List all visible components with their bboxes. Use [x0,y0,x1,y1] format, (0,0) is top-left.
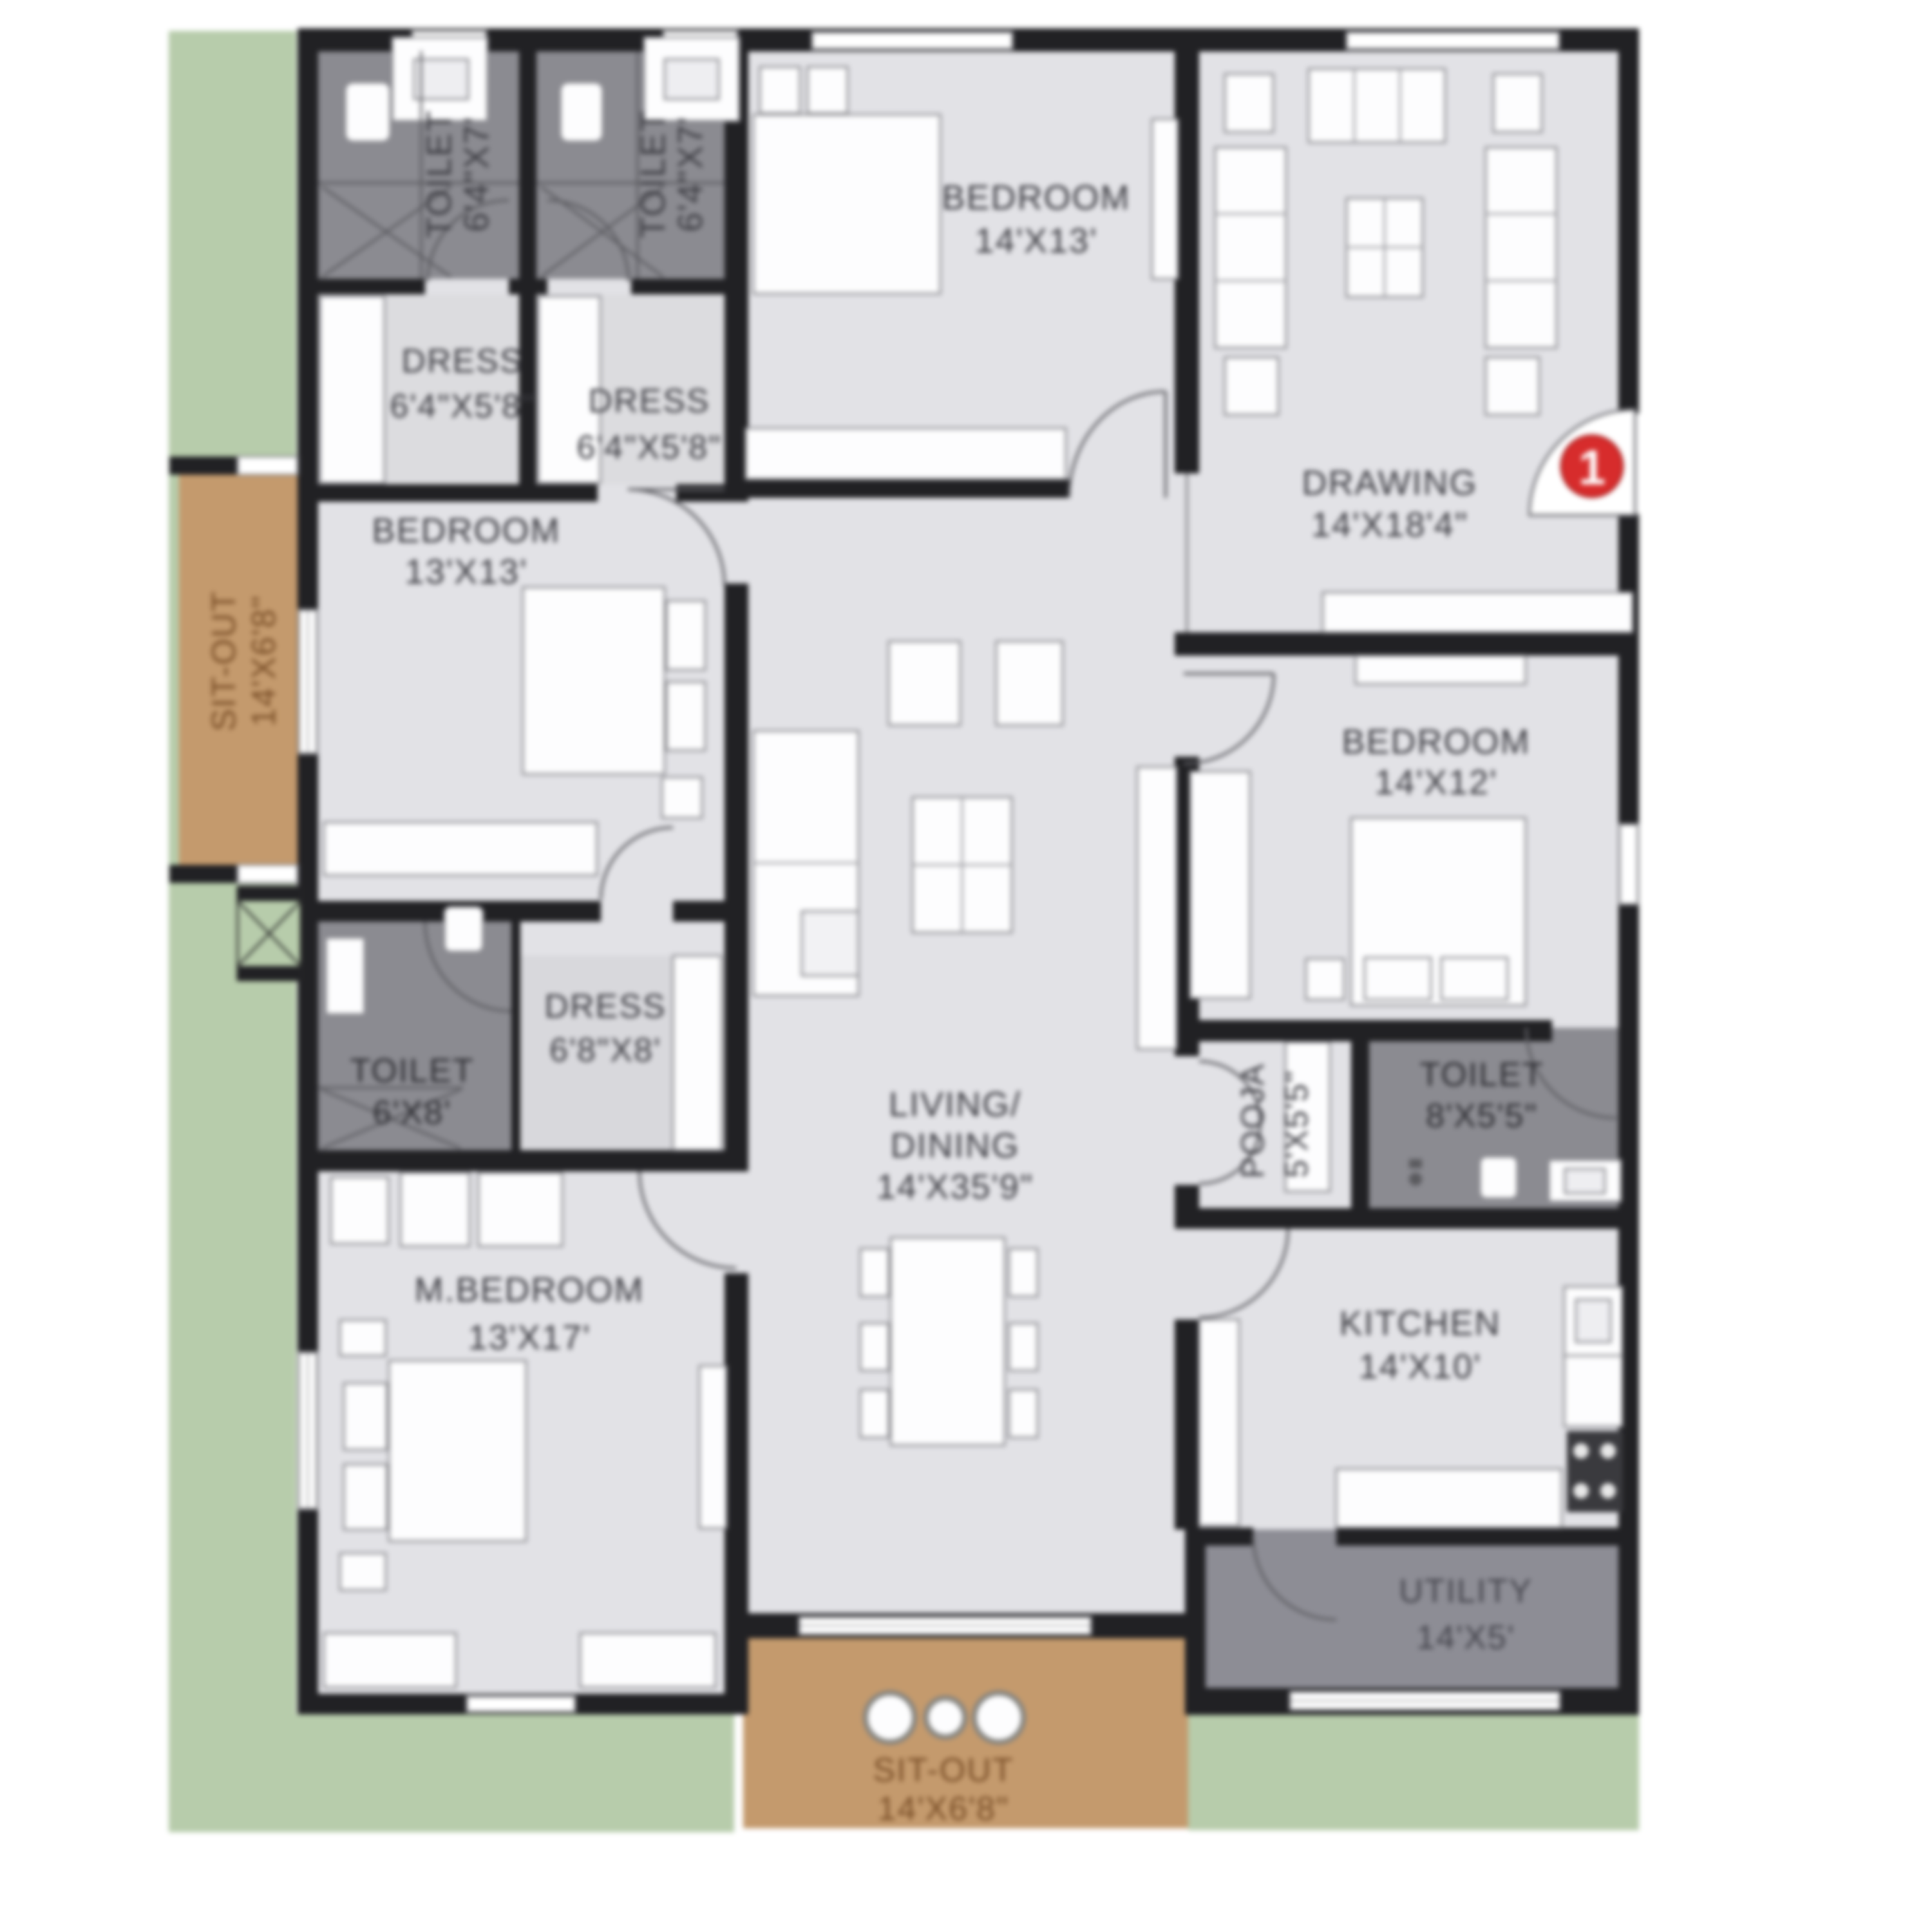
svg-text:13'X13': 13'X13' [405,553,528,591]
svg-text:BEDROOM: BEDROOM [942,178,1130,217]
svg-text:BEDROOM: BEDROOM [372,511,560,550]
svg-text:6'8"X8': 6'8"X8' [549,1032,661,1069]
svg-text:M.BEDROOM: M.BEDROOM [414,1271,644,1309]
svg-text:14'X18'4": 14'X18'4" [1311,506,1468,544]
svg-text:1: 1 [1578,440,1605,495]
svg-text:14'X12': 14'X12' [1375,763,1498,802]
svg-text:DRESS: DRESS [401,343,523,380]
svg-text:13'X17': 13'X17' [468,1318,591,1357]
svg-text:6'4"X5'8": 6'4"X5'8" [576,429,721,466]
svg-text:DRESS: DRESS [544,988,666,1025]
svg-text:DRESS: DRESS [588,383,710,420]
svg-text:TOILET6'4"X7': TOILET6'4"X7' [420,109,496,238]
svg-text:POOJA: POOJA [1235,1063,1271,1178]
svg-text:DINING: DINING [891,1126,1020,1165]
svg-text:8'X5'5": 8'X5'5" [1426,1097,1538,1135]
svg-text:14'X13': 14'X13' [975,222,1098,260]
svg-text:TOILET: TOILET [350,1052,474,1090]
svg-text:BEDROOM: BEDROOM [1341,723,1530,761]
svg-text:KITCHEN: KITCHEN [1339,1304,1501,1343]
svg-text:14'X5': 14'X5' [1416,1619,1515,1656]
svg-text:UTILITY: UTILITY [1399,1573,1533,1610]
svg-text:TOILET: TOILET [1419,1056,1544,1094]
svg-text:14'X35'9": 14'X35'9" [876,1168,1034,1206]
svg-text:5'X5'5": 5'X5'5" [1278,1070,1314,1178]
svg-text:DRAWING: DRAWING [1302,464,1478,502]
svg-text:14'X10': 14'X10' [1359,1347,1482,1386]
svg-text:SIT-OUT: SIT-OUT [873,1752,1014,1789]
svg-text:LIVING/: LIVING/ [889,1085,1021,1124]
svg-text:TOILET6'4"X7': TOILET6'4"X7' [634,109,710,238]
svg-text:6'X8': 6'X8' [373,1094,451,1132]
svg-text:14'X6'8": 14'X6'8" [878,1790,1010,1828]
svg-text:6'4"X5'8": 6'4"X5'8" [390,388,535,425]
